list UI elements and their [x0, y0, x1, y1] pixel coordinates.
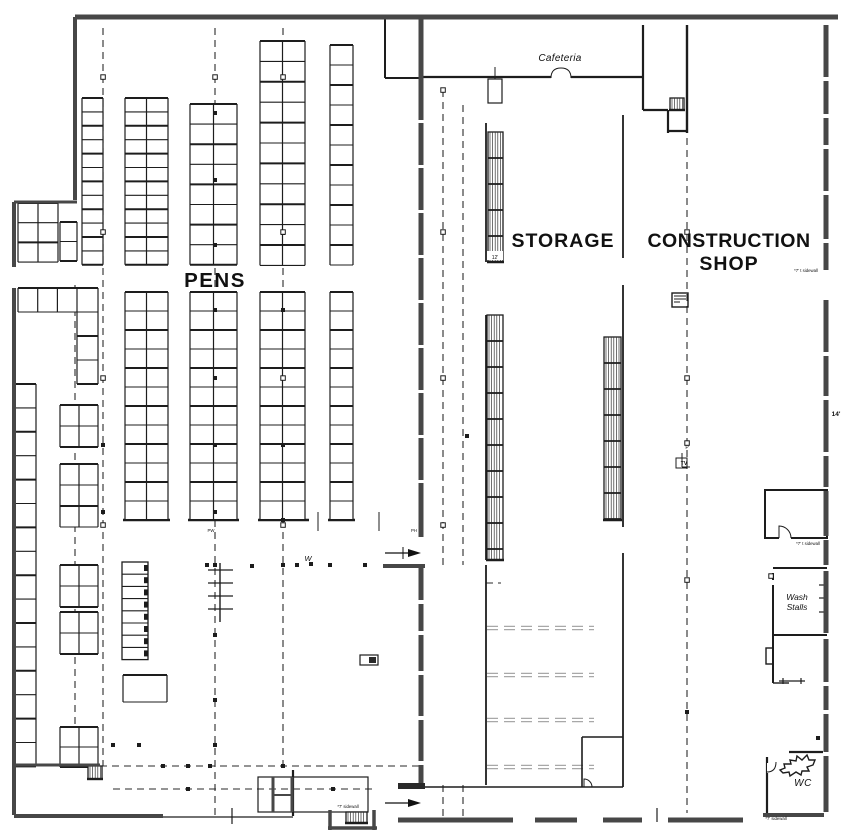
post-marker	[213, 243, 217, 247]
post-marker	[137, 743, 141, 747]
grid-anchor-marker	[441, 88, 446, 93]
post-marker	[331, 787, 335, 791]
post-marker	[213, 376, 217, 380]
label-stalls: Stalls	[787, 602, 809, 612]
label-dim-12ft: 12'	[492, 255, 499, 261]
arrow-head-icon	[408, 549, 421, 557]
flow-arrows	[385, 547, 421, 807]
grid-anchor-marker	[101, 523, 106, 528]
grid-anchor-marker	[441, 230, 446, 235]
solid-fill	[369, 657, 376, 663]
pen-block	[18, 288, 77, 312]
label-wc: WC	[794, 778, 812, 789]
post-marker	[465, 434, 469, 438]
post-marker	[281, 443, 285, 447]
floor-plan-page: PENSSTORAGECONSTRUCTIONSHOPCafeteriaWash…	[0, 0, 850, 834]
post-marker	[213, 308, 217, 312]
latch-mark	[144, 602, 148, 608]
post-marker	[205, 563, 209, 567]
post-marker	[213, 743, 217, 747]
grid-anchor-marker	[281, 75, 286, 80]
label-note-sidewall-4: *7' sidewall	[337, 804, 358, 809]
grid-anchor-marker	[213, 75, 218, 80]
post-marker	[213, 111, 217, 115]
latch-mark	[144, 650, 148, 656]
label-pw-marker: PW	[208, 528, 216, 533]
grid-anchor-marker	[685, 578, 690, 583]
latch-mark	[144, 614, 148, 620]
post-marker	[111, 743, 115, 747]
label-construction: CONSTRUCTION	[647, 230, 810, 252]
doors-and-symbols	[487, 68, 815, 787]
post-marker	[213, 633, 217, 637]
post-marker	[161, 764, 165, 768]
label-note-sidewall-2: *7' t sidewall	[796, 541, 820, 546]
post-marker	[186, 787, 190, 791]
grid-anchor-marker	[101, 75, 106, 80]
solid-fill	[398, 783, 425, 789]
room-outline	[672, 293, 688, 307]
post-marker	[281, 308, 285, 312]
hatched-racks	[87, 98, 685, 823]
post-marker	[281, 518, 285, 522]
latch-mark	[144, 626, 148, 632]
post-marker	[213, 563, 217, 567]
arrow-head-icon	[408, 799, 421, 807]
label-note-sidewall-1: *7' t sidewall	[794, 268, 818, 273]
grid-anchor-marker	[281, 230, 286, 235]
post-marker	[250, 564, 254, 568]
grid-anchor-marker	[769, 574, 774, 579]
equipment-row-lines	[487, 626, 594, 768]
post-marker	[816, 736, 820, 740]
grid-anchor-marker	[101, 376, 106, 381]
label-cafeteria: Cafeteria	[538, 53, 581, 64]
label-tv-marker: TV	[681, 461, 688, 467]
post-marker	[328, 563, 332, 567]
room-outline	[488, 79, 502, 103]
label-dim-14ft: 14'	[832, 411, 841, 418]
post-marker	[101, 510, 105, 514]
plan-symbol	[551, 68, 561, 78]
pen-block	[330, 45, 353, 265]
post-marker	[213, 510, 217, 514]
label-ph-marker: PH	[411, 528, 417, 533]
label-p-marker: P	[685, 445, 689, 451]
post-marker	[186, 764, 190, 768]
floor-plan: PENSSTORAGECONSTRUCTIONSHOPCafeteriaWash…	[0, 0, 850, 834]
grid-anchor-marker	[281, 523, 286, 528]
post-marker	[213, 698, 217, 702]
label-pens: PENS	[184, 269, 246, 292]
latch-mark	[144, 638, 148, 644]
grid-anchor-marker	[441, 376, 446, 381]
latch-mark	[144, 577, 148, 583]
latch-mark	[144, 589, 148, 595]
post-marker	[213, 178, 217, 182]
room-outline	[766, 648, 773, 664]
post-marker	[363, 563, 367, 567]
door-gap	[779, 536, 791, 540]
post-marker	[281, 764, 285, 768]
pen-grids	[15, 41, 353, 767]
latch-mark	[144, 565, 148, 571]
plan-symbol	[780, 755, 815, 776]
grid-anchor-marker	[685, 376, 690, 381]
plan-symbol	[584, 779, 592, 787]
grid-anchor-marker	[281, 376, 286, 381]
post-marker	[685, 710, 689, 714]
label-wash: Wash	[786, 592, 808, 602]
post-marker	[208, 764, 212, 768]
label-storage: STORAGE	[511, 230, 614, 252]
room-outline	[765, 490, 827, 538]
grid-anchor-marker	[441, 523, 446, 528]
label-note-sidewall-3: *7' sidewall	[765, 816, 786, 821]
plan-symbol	[561, 68, 571, 78]
grid-anchor-marker	[101, 230, 106, 235]
post-marker	[295, 563, 299, 567]
post-marker	[281, 563, 285, 567]
post-marker	[101, 443, 105, 447]
post-marker	[213, 443, 217, 447]
pen-block	[123, 675, 167, 702]
label-w-marker: W	[304, 554, 312, 563]
label-shop: SHOP	[699, 253, 758, 275]
